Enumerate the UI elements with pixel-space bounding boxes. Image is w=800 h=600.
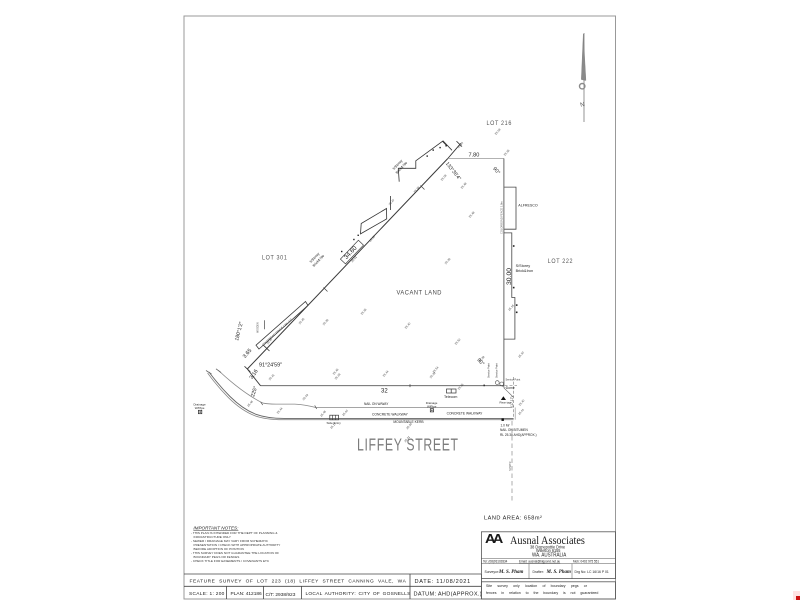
svg-text:Dome: Dome xyxy=(506,386,515,390)
svg-text:FEATURE SURVEY OF LOT 223 (18: FEATURE SURVEY OF LOT 223 (18) LIFFEY ST… xyxy=(190,579,407,585)
svg-text:CONCRETE WALKWAY: CONCRETE WALKWAY xyxy=(447,411,484,415)
svg-text:C/T: 2938/923: C/T: 2938/923 xyxy=(266,592,296,598)
svg-text:1.0 M/: 1.0 M/ xyxy=(501,423,510,427)
svg-text:IMPORTANT NOTES:: IMPORTANT NOTES: xyxy=(193,526,239,531)
svg-text:LOT 216: LOT 216 xyxy=(487,121,512,128)
svg-text:Email: ausnal@bigpond.net.au: Email: ausnal@bigpond.net.au xyxy=(519,559,560,563)
svg-text:M. S. Pham: M. S. Pham xyxy=(546,570,572,575)
svg-text:Service Point: Service Point xyxy=(506,379,521,382)
svg-text:LAND AREA: 658m²: LAND AREA: 658m² xyxy=(484,516,542,522)
svg-text:Drafter:: Drafter: xyxy=(533,570,544,574)
svg-text:M. S. Pham: M. S. Pham xyxy=(498,570,524,575)
svg-text:PLAN: 412186: PLAN: 412186 xyxy=(231,591,263,597)
svg-text:Drg No: LC 16/16 P 01: Drg No: LC 16/16 P 01 xyxy=(575,570,609,574)
svg-text:- CHECK TITLE FOR EASEMENTS /: - CHECK TITLE FOR EASEMENTS / COVENANTS … xyxy=(191,559,270,563)
svg-text:COLORBOND FENCE 1.8m: COLORBOND FENCE 1.8m xyxy=(499,201,503,234)
svg-text:Service Point: Service Point xyxy=(496,363,499,378)
svg-text:32: 32 xyxy=(381,388,388,394)
svg-text:ALFRESCO: ALFRESCO xyxy=(518,203,538,207)
svg-text:Mob: 0402 975 551: Mob: 0402 975 551 xyxy=(573,559,599,563)
svg-text:W/Pipe: W/Pipe xyxy=(427,404,437,408)
svg-text:NAIL ON W/WAY: NAIL ON W/WAY xyxy=(364,402,389,406)
svg-text:DATE: 11/08/2021: DATE: 11/08/2021 xyxy=(415,579,471,585)
svg-text:LOCAL AUTHORITY: CITY OF GOSNE: LOCAL AUTHORITY: CITY OF GOSNELLS xyxy=(306,591,411,597)
svg-text:NAIL ON BITUMEN: NAIL ON BITUMEN xyxy=(500,428,529,432)
svg-text:SCWTR: SCWTR xyxy=(508,461,512,471)
svg-text:Tel: (08)93102834: Tel: (08)93102834 xyxy=(483,559,508,563)
svg-text:Rear tap: Rear tap xyxy=(500,400,511,404)
svg-text:Brick&Iron: Brick&Iron xyxy=(516,269,534,273)
svg-text:VACANT LAND: VACANT LAND xyxy=(397,289,442,297)
svg-text:WOODEN: WOODEN xyxy=(258,322,260,333)
svg-text:Site survey only location of b: Site survey only location of boundary pe… xyxy=(486,584,588,588)
svg-text:Surveyor:: Surveyor: xyxy=(485,570,500,574)
svg-text:7.80: 7.80 xyxy=(469,153,480,159)
svg-text:DATUM: AHD(APPROX.): DATUM: AHD(APPROX.) xyxy=(414,592,482,598)
svg-text:S/Storey: S/Storey xyxy=(516,264,531,268)
svg-text:Service Point: Service Point xyxy=(487,363,490,378)
svg-text:91°24'59": 91°24'59" xyxy=(259,363,282,369)
svg-text:Willetton 6155: Willetton 6155 xyxy=(536,548,561,553)
svg-text:LOT 222: LOT 222 xyxy=(548,259,573,266)
svg-text:Telecom: Telecom xyxy=(444,395,457,399)
svg-text:RL 25.38 AHD(APPROX.): RL 25.38 AHD(APPROX.) xyxy=(500,433,537,437)
svg-text:W/Pipe: W/Pipe xyxy=(195,406,205,410)
svg-text:fences in relation to the boun: fences in relation to the boundary is no… xyxy=(486,591,598,595)
svg-text:LOT 301: LOT 301 xyxy=(262,255,287,262)
svg-text:SCALE: 1: 200: SCALE: 1: 200 xyxy=(189,591,225,597)
svg-text:CONCRETE WALKWAY: CONCRETE WALKWAY xyxy=(372,413,409,417)
svg-text:WA. AUSTRALIA: WA. AUSTRALIA xyxy=(532,552,567,558)
